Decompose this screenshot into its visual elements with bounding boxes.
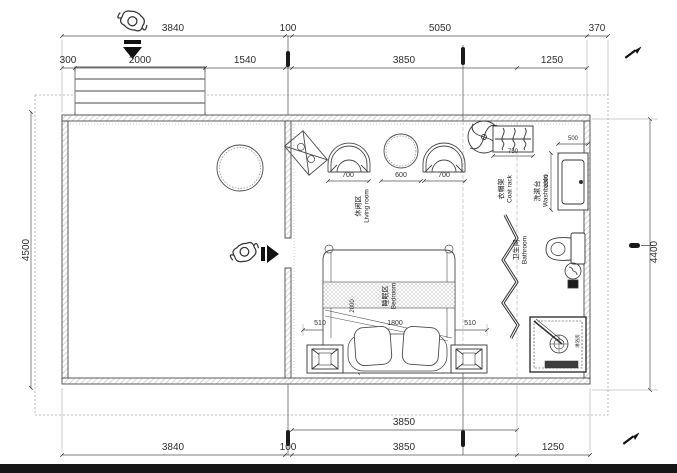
entrance-steps bbox=[75, 67, 205, 115]
living-room-label-en: Living room bbox=[363, 189, 370, 223]
pen-icon-bottom-right bbox=[623, 431, 639, 446]
person-icon-room bbox=[228, 238, 262, 266]
living-room-label: 休闲区 Living room bbox=[355, 189, 370, 223]
dim-left-4500: 4500 bbox=[22, 239, 32, 261]
coat-rack-label: 衣帽架 Coat rack bbox=[498, 175, 513, 203]
washbasin-label: 洗漱台 Washbasin bbox=[534, 175, 549, 207]
washbasin bbox=[558, 153, 588, 210]
dim-top2-2000: 2000 bbox=[129, 56, 151, 66]
dim-bed-510-left: 510 bbox=[314, 320, 326, 327]
bottom-border-bar bbox=[0, 464, 677, 473]
bedroom-label: 睡眠区 Bedroom bbox=[382, 283, 397, 309]
dim-bed-2000: 2000 bbox=[350, 299, 356, 312]
dim-bottom2-100: 100 bbox=[280, 443, 297, 453]
coat-rack-label-zh: 衣帽架 bbox=[498, 179, 506, 200]
dim-coatrack-750: 750 bbox=[508, 149, 518, 155]
armchair-right bbox=[423, 143, 465, 172]
dim-top-5050: 5050 bbox=[429, 24, 451, 34]
toilet bbox=[546, 233, 585, 264]
dim-top2-3850: 3850 bbox=[393, 56, 415, 66]
nightstand-right bbox=[451, 345, 487, 373]
dim-top-100: 100 bbox=[280, 24, 297, 34]
divider-wall bbox=[285, 121, 291, 378]
coffee-table bbox=[384, 134, 418, 168]
dim-top2-1250: 1250 bbox=[541, 56, 563, 66]
person-icon-entry bbox=[115, 6, 150, 35]
nightstand-left bbox=[307, 345, 343, 373]
folding-partition bbox=[503, 215, 518, 338]
armchair-left bbox=[328, 143, 370, 172]
living-room-label-zh: 休闲区 bbox=[355, 196, 363, 217]
dim-bottom2-3840: 3840 bbox=[162, 443, 184, 453]
dim-bed-1800: 1800 bbox=[387, 320, 403, 327]
bathroom-label-zh: 卫生间 bbox=[513, 240, 521, 261]
washbasin-label-en: Washbasin bbox=[542, 175, 549, 207]
grid-lines bbox=[288, 36, 463, 455]
floor-plan-canvas: 3840 100 5050 370 300 2000 1540 3850 125… bbox=[0, 0, 677, 473]
dim-top-370: 370 bbox=[589, 24, 606, 34]
floor-plan-linework bbox=[0, 0, 677, 473]
round-table-large bbox=[217, 145, 263, 191]
bedroom-label-zh: 睡眠区 bbox=[382, 286, 390, 307]
bedroom-label-en: Bedroom bbox=[390, 283, 397, 309]
bathroom-label-en: Bathroom bbox=[521, 236, 528, 264]
dim-bottom1-3850: 3850 bbox=[393, 418, 415, 428]
door-opening bbox=[285, 238, 291, 268]
dim-bottom2-3850: 3850 bbox=[393, 443, 415, 453]
dim-chair-left-700: 700 bbox=[342, 172, 354, 179]
dim-table-600: 600 bbox=[395, 172, 407, 179]
entry-arrow-right bbox=[261, 245, 279, 263]
pen-icon-top-right bbox=[625, 45, 641, 60]
dim-washbasin-500: 500 bbox=[568, 136, 578, 142]
dim-top2-300: 300 bbox=[60, 56, 77, 66]
dim-top-3840: 3840 bbox=[162, 24, 184, 34]
shower-label: 淋浴房 bbox=[575, 334, 581, 348]
dim-chair-right-700: 700 bbox=[438, 172, 450, 179]
floor-drain bbox=[565, 263, 581, 288]
dim-right-4400: 4400 bbox=[650, 241, 660, 263]
dim-bottom2-1250: 1250 bbox=[542, 443, 564, 453]
washbasin-label-zh: 洗漱台 bbox=[534, 181, 542, 202]
coat-rack-label-en: Coat rack bbox=[506, 175, 513, 203]
grid-markers bbox=[286, 47, 465, 447]
dim-top2-1540: 1540 bbox=[234, 56, 256, 66]
bathroom-label: 卫生间 Bathroom bbox=[513, 236, 528, 264]
dim-bed-510-right: 510 bbox=[464, 320, 476, 327]
